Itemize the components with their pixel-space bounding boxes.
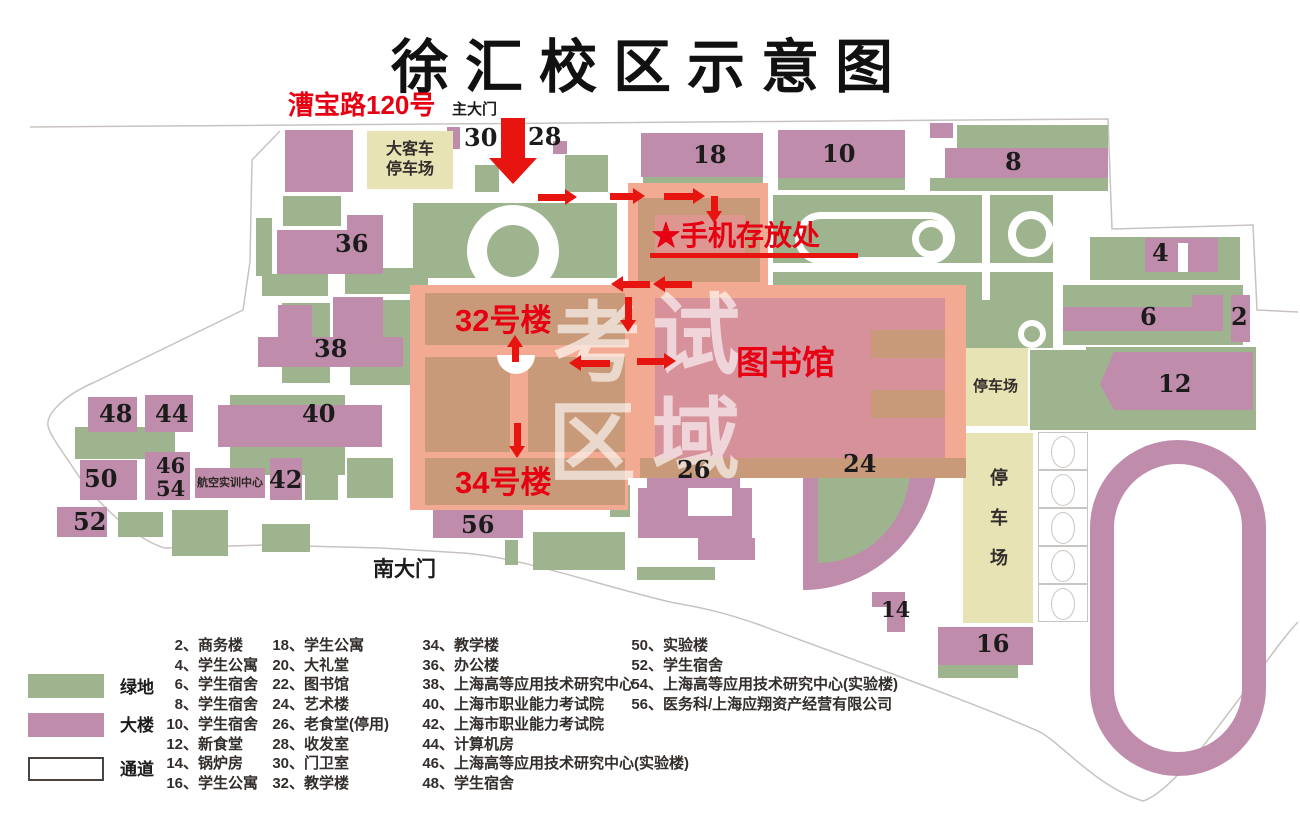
label-24: 24: [843, 452, 876, 476]
building-32-label: 32号楼: [455, 305, 551, 336]
building-6-annex: [1192, 295, 1223, 309]
roundabout-inner: [487, 225, 539, 277]
building-4-gap: [1178, 243, 1188, 272]
building-38-annex: [333, 297, 383, 339]
label-36: 36: [335, 232, 368, 256]
directory-entry: 10、学生宿舍: [162, 715, 258, 735]
directory-entry: 6、学生宿舍: [162, 675, 258, 695]
directory-entry: 54、上海高等应用技术研究中心(实验楼): [627, 675, 898, 695]
green-area: [930, 178, 1108, 191]
legend-label-passage: 通道: [120, 760, 154, 780]
label-38: 38: [314, 337, 347, 361]
garden-ring: [1008, 211, 1054, 257]
green-area: [283, 196, 341, 226]
courts: [1038, 432, 1088, 622]
directory-entry: 50、实验楼: [627, 636, 898, 656]
building-40: [218, 405, 382, 447]
directory-entry: 2、商务楼: [162, 636, 258, 656]
directory-column-2: 18、学生公寓20、大礼堂22、图书馆24、艺术楼26、老食堂(停用)28、收发…: [268, 636, 389, 794]
directory-entry: 56、医务科/上海应翔资产经营有限公司: [627, 695, 898, 715]
campus-map: 徐汇校区示意图 漕宝路120号 主大门: [0, 0, 1300, 828]
building-26-courtyard: [688, 488, 732, 516]
directory-entry: 42、上海市职业能力考试院: [418, 715, 689, 735]
route-arrow-down: [514, 423, 521, 447]
directory-entry: 46、上海高等应用技术研究中心(实验楼): [418, 754, 689, 774]
garden-ring-small: [1018, 320, 1046, 348]
label-50: 50: [84, 467, 117, 491]
library-label: 图书馆: [736, 346, 835, 379]
directory-column-1: 2、商务楼4、学生公寓6、学生宿舍8、学生宿舍10、学生宿舍12、新食堂14、锅…: [162, 636, 258, 794]
legend-label-building: 大楼: [120, 716, 154, 736]
label-42: 42: [269, 468, 302, 492]
green-area: [505, 540, 518, 565]
directory-entry: 20、大礼堂: [268, 656, 389, 676]
label-10: 10: [822, 142, 855, 166]
bus-parking-label-2: 停车场: [386, 160, 434, 180]
green-area: [347, 458, 393, 498]
directory-entry: 32、教学楼: [268, 774, 389, 794]
green-area: [778, 178, 905, 190]
legend-swatch-pink: [28, 713, 104, 737]
library-notch: [871, 390, 945, 418]
label-14: 14: [881, 599, 910, 620]
label-16: 16: [976, 632, 1009, 656]
south-parking: 停车场: [963, 433, 1033, 623]
east-parking-label: 停车场: [973, 377, 1018, 397]
building-34-label: 34号楼: [455, 467, 551, 498]
green-area: [262, 274, 328, 296]
route-arrow-left: [664, 281, 692, 288]
label-48: 48: [99, 402, 132, 426]
building-26: [698, 538, 755, 560]
route-arrow-left: [622, 281, 650, 288]
green-area: [118, 512, 163, 537]
east-parking: 停车场: [963, 348, 1028, 426]
route-arrow-right: [637, 358, 665, 365]
directory-entry: 44、计算机房: [418, 735, 689, 755]
green-area: [319, 448, 335, 460]
green-area: [533, 532, 625, 570]
directory-entry: 26、老食堂(停用): [268, 715, 389, 735]
green-area: [1030, 350, 1086, 430]
running-track: [1090, 440, 1266, 776]
garden-road: [982, 195, 990, 300]
building-38-annex: [278, 305, 312, 339]
directory-entry: 22、图书馆: [268, 675, 389, 695]
label-2: 2: [1231, 305, 1248, 329]
label-40: 40: [302, 402, 335, 426]
legend-label-green: 绿地: [120, 678, 154, 698]
gate-arrow-head: [489, 158, 537, 184]
label-46: 46: [156, 455, 185, 476]
directory-entry: 52、学生宿舍: [627, 656, 898, 676]
route-arrow-down: [711, 196, 718, 212]
garden-road: [773, 263, 1053, 272]
building-8-annex: [930, 123, 953, 138]
route-arrow-left: [580, 360, 610, 367]
label-56: 56: [461, 513, 494, 537]
garden-path-circle: [912, 220, 950, 258]
green-area: [305, 458, 338, 500]
south-parking-label: 停车场: [985, 468, 1011, 588]
route-arrow-right: [538, 194, 566, 201]
phone-storage-underline: [650, 253, 858, 258]
label-18: 18: [693, 143, 726, 167]
route-arrow-right: [610, 193, 634, 200]
route-arrow-up: [512, 346, 519, 362]
green-area: [565, 155, 608, 192]
bus-parking: 大客车 停车场: [367, 131, 453, 189]
green-area: [957, 125, 1108, 148]
directory-entry: 28、收发室: [268, 735, 389, 755]
green-area: [255, 448, 271, 460]
label-30: 30: [464, 126, 497, 150]
label-4: 4: [1152, 241, 1169, 265]
building-8: [945, 148, 1108, 178]
gate-arrow-shaft: [501, 118, 525, 158]
directory-entry: 24、艺术楼: [268, 695, 389, 715]
green-area: [172, 510, 228, 556]
directory-entry: 18、学生公寓: [268, 636, 389, 656]
label-12: 12: [1158, 372, 1191, 396]
label-26: 26: [677, 458, 710, 482]
label-6: 6: [1140, 305, 1157, 329]
directory-entry: 48、学生宿舍: [418, 774, 689, 794]
directory-column-4: 50、实验楼52、学生宿舍54、上海高等应用技术研究中心(实验楼)56、医务科/…: [627, 636, 898, 715]
legend-swatch-passage: [28, 757, 104, 781]
exam-watermark-3: 区: [548, 400, 636, 488]
exam-courtyard-left: [425, 357, 510, 452]
green-area: [256, 218, 272, 276]
route-arrow-right: [664, 193, 694, 200]
directory-entry: 14、锅炉房: [162, 754, 258, 774]
legend-swatch-green: [28, 674, 104, 698]
green-area: [262, 524, 310, 552]
directory-entry: 30、门卫室: [268, 754, 389, 774]
label-44: 44: [155, 402, 188, 426]
directory-entry: 8、学生宿舍: [162, 695, 258, 715]
label-52: 52: [73, 510, 106, 534]
label-54: 54: [156, 478, 185, 499]
route-arrow-down: [625, 297, 632, 321]
building-topleft: [285, 130, 353, 192]
directory-entry: 12、新食堂: [162, 735, 258, 755]
phone-storage-label: ★手机存放处: [652, 222, 820, 250]
label-8: 8: [1005, 150, 1022, 174]
south-gate-label: 南大门: [373, 557, 436, 581]
directory-entry: 16、学生公寓: [162, 774, 258, 794]
library-notch: [871, 330, 945, 358]
bus-parking-label-1: 大客车: [386, 140, 434, 160]
label-28: 28: [528, 125, 561, 149]
directory-entry: 4、学生公寓: [162, 656, 258, 676]
aviation-center-label: 航空实训中心: [197, 477, 263, 490]
green-area: [637, 567, 715, 580]
